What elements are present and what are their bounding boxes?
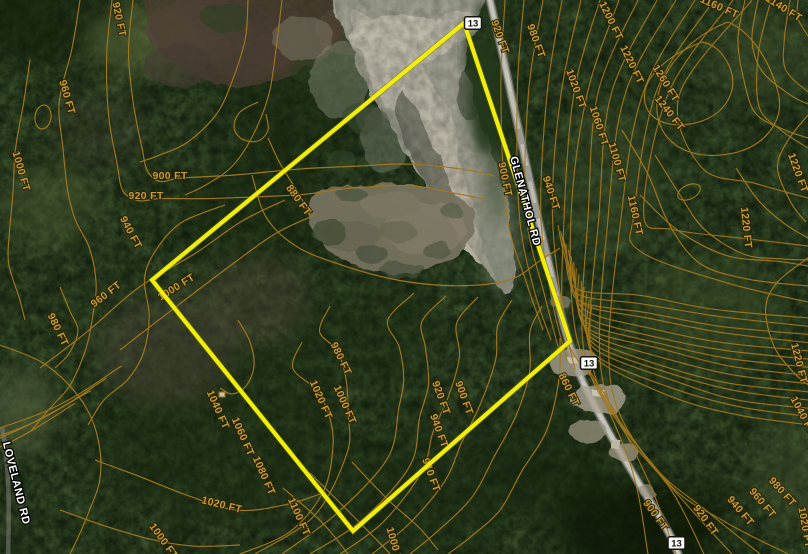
svg-text:13: 13	[584, 358, 595, 369]
svg-text:13: 13	[468, 18, 479, 29]
svg-text:13: 13	[671, 538, 682, 549]
svg-text:920 FT: 920 FT	[128, 190, 163, 202]
svg-text:900 FT: 900 FT	[152, 170, 187, 182]
